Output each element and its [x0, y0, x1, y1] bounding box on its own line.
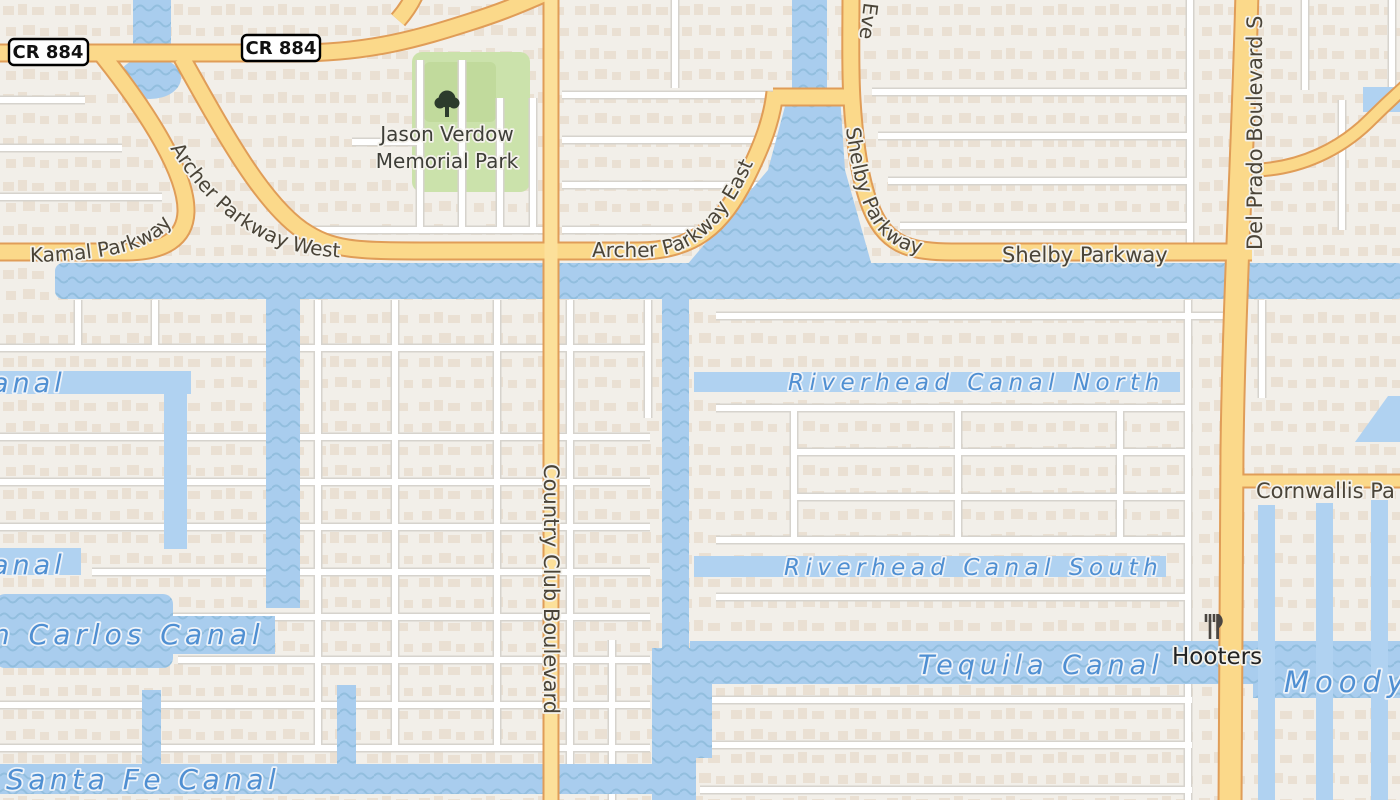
- park-label-line2: Memorial Park: [376, 149, 519, 173]
- canal-label-riverhead-south: Riverhead Canal South: [784, 555, 1163, 581]
- canal-label-santa-fe: Santa Fe Canal: [6, 763, 280, 796]
- route-shield-cr884-left: CR 884: [9, 39, 88, 65]
- road-label-everest-partial: Eve: [855, 1, 883, 40]
- route-shield-cr884-right: CR 884: [242, 35, 320, 61]
- road-label-shelby: Shelby Parkway: [1002, 243, 1168, 267]
- map-canvas[interactable]: CR 884 CR 884 Kamal Parkway Archer Parkw…: [0, 0, 1400, 800]
- park-label-line1: Jason Verdow: [378, 122, 513, 146]
- poi-label-hooters[interactable]: Hooters: [1172, 644, 1262, 670]
- canal-label-riverhead-north: Riverhead Canal North: [788, 370, 1165, 396]
- road-label-country-club: Country Club Boulevard: [539, 464, 563, 714]
- canal-label-clipped-1: anal: [0, 368, 66, 399]
- canal-label-clipped-2: anal: [0, 550, 66, 581]
- shield-label: CR 884: [13, 42, 84, 63]
- canal-label-tequila: Tequila Canal: [918, 650, 1164, 681]
- road-label-del-prado: Del Prado Boulevard S: [1243, 16, 1267, 250]
- shield-label: CR 884: [246, 38, 317, 59]
- road-label-cornwallis: Cornwallis Pa: [1256, 479, 1395, 503]
- canal-label-san-carlos: n Carlos Canal: [0, 618, 265, 651]
- canal-label-moody: Moody C: [1284, 665, 1400, 699]
